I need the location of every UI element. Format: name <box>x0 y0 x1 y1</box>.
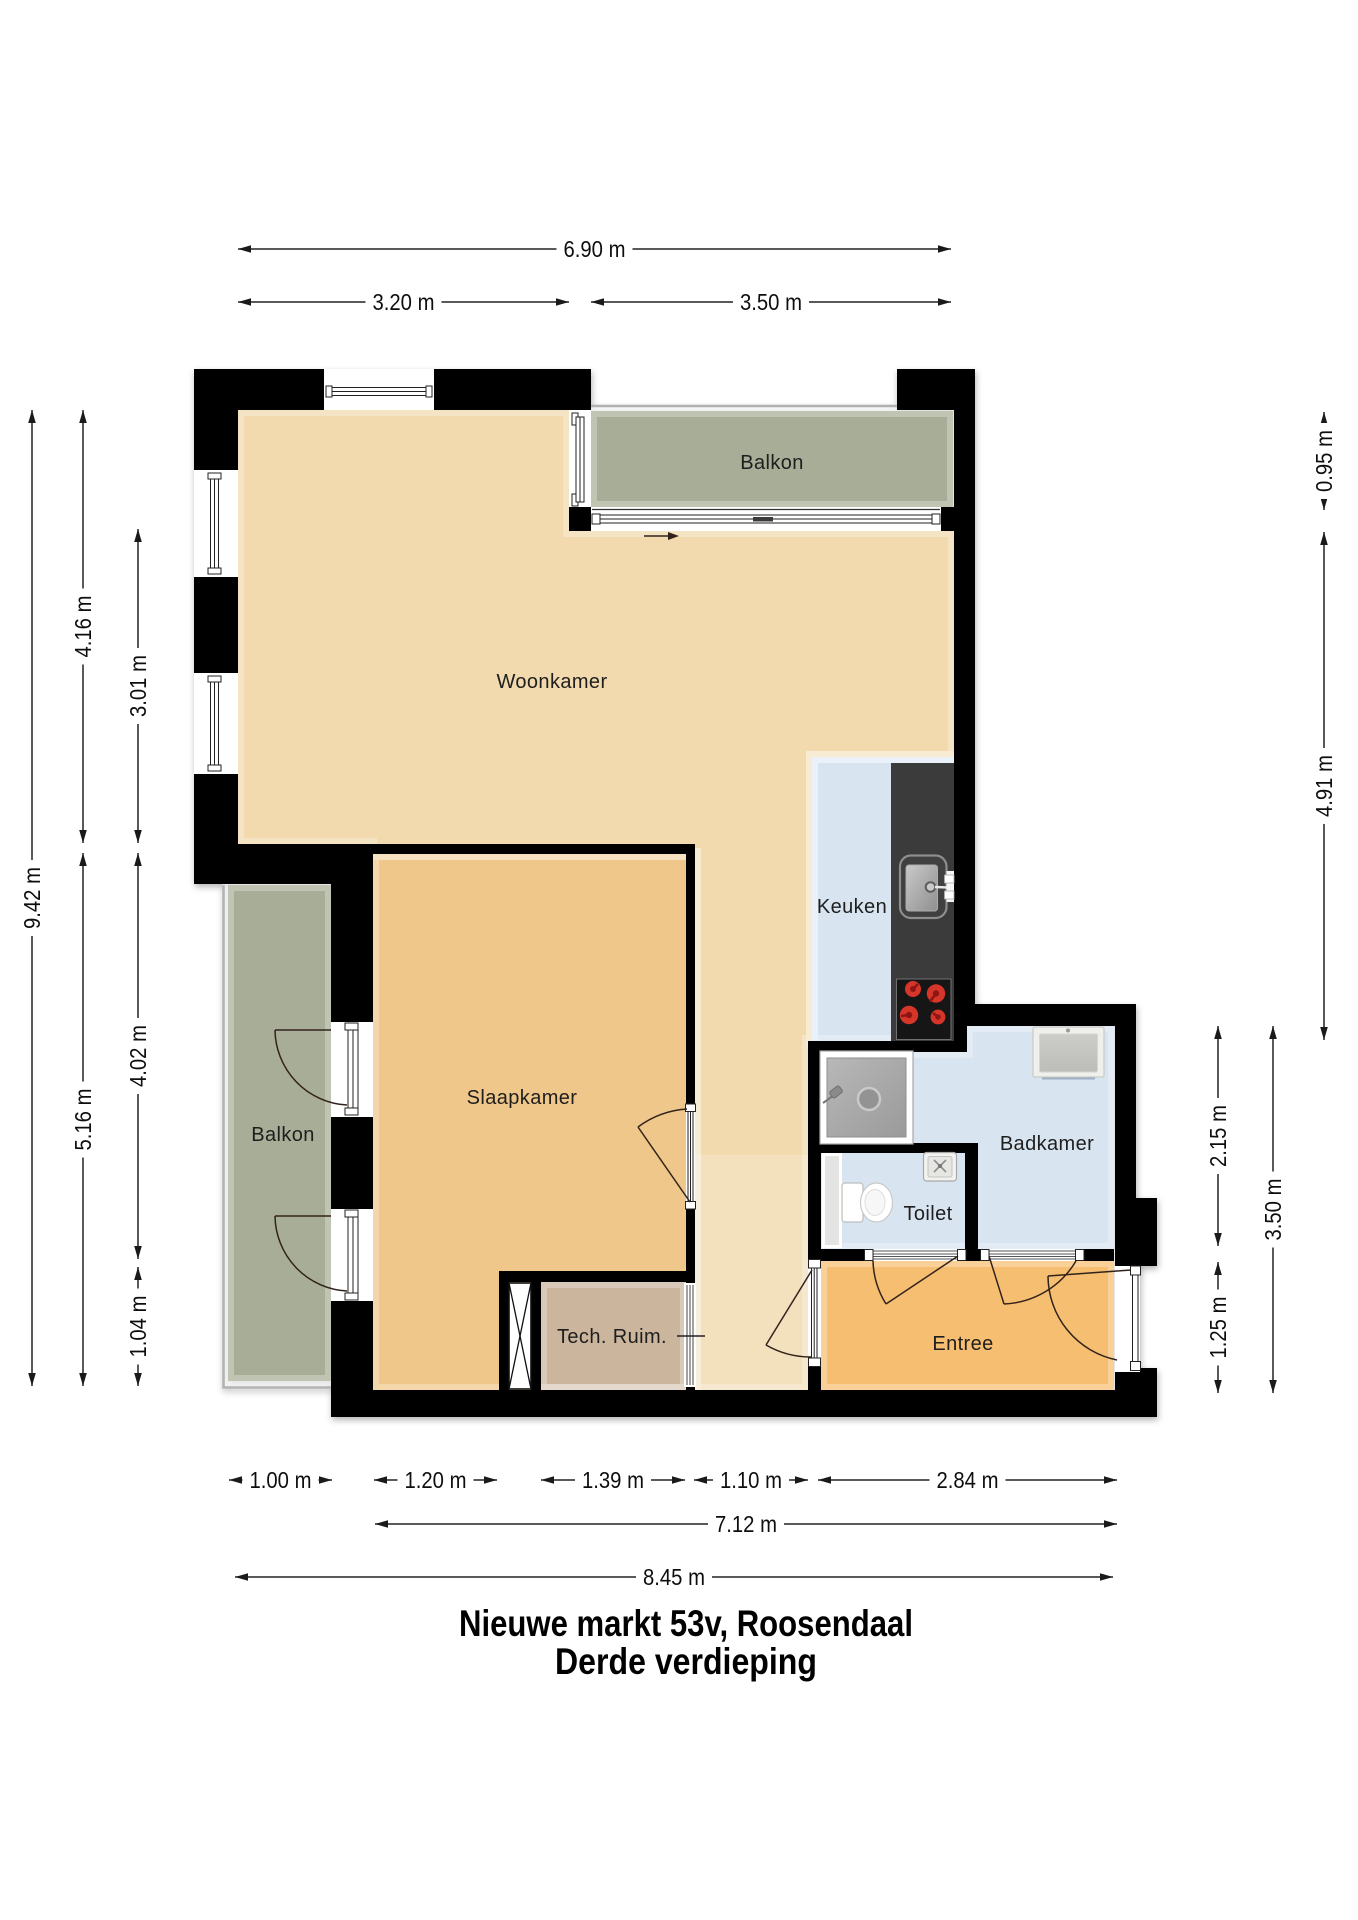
svg-text:2.15 m: 2.15 m <box>1205 1105 1231 1167</box>
svg-text:1.39 m: 1.39 m <box>582 1467 644 1493</box>
svg-text:1.20 m: 1.20 m <box>405 1467 467 1493</box>
svg-text:1.00 m: 1.00 m <box>250 1467 312 1493</box>
svg-text:5.16 m: 5.16 m <box>70 1089 96 1151</box>
svg-text:1.10 m: 1.10 m <box>720 1467 782 1493</box>
svg-text:3.50 m: 3.50 m <box>1260 1179 1286 1241</box>
svg-text:1.04 m: 1.04 m <box>125 1296 151 1358</box>
svg-text:Badkamer: Badkamer <box>1000 1133 1094 1155</box>
svg-text:Slaapkamer: Slaapkamer <box>467 1087 578 1109</box>
svg-text:4.91 m: 4.91 m <box>1311 755 1337 817</box>
svg-text:Balkon: Balkon <box>740 452 804 474</box>
svg-text:3.50 m: 3.50 m <box>740 289 802 315</box>
svg-text:3.20 m: 3.20 m <box>373 289 435 315</box>
svg-text:2.84 m: 2.84 m <box>937 1467 999 1493</box>
svg-text:Keuken: Keuken <box>817 896 887 918</box>
svg-text:Tech. Ruim.: Tech. Ruim. <box>557 1326 667 1348</box>
svg-text:1.25 m: 1.25 m <box>1205 1297 1231 1359</box>
svg-text:Nieuwe markt 53v, Roosendaal: Nieuwe markt 53v, Roosendaal <box>459 1603 913 1644</box>
svg-text:Toilet: Toilet <box>903 1203 952 1225</box>
svg-text:7.12 m: 7.12 m <box>715 1511 777 1537</box>
svg-text:4.02 m: 4.02 m <box>125 1025 151 1087</box>
svg-text:Entree: Entree <box>932 1333 993 1355</box>
svg-text:9.42 m: 9.42 m <box>19 867 45 929</box>
svg-text:6.90 m: 6.90 m <box>564 236 626 262</box>
svg-text:Derde verdieping: Derde verdieping <box>555 1641 817 1682</box>
svg-text:0.95 m: 0.95 m <box>1311 430 1337 492</box>
svg-text:Woonkamer: Woonkamer <box>496 671 607 693</box>
svg-text:Balkon: Balkon <box>251 1124 315 1146</box>
svg-text:3.01 m: 3.01 m <box>125 655 151 717</box>
svg-text:8.45 m: 8.45 m <box>643 1564 705 1590</box>
svg-text:4.16 m: 4.16 m <box>70 596 96 658</box>
